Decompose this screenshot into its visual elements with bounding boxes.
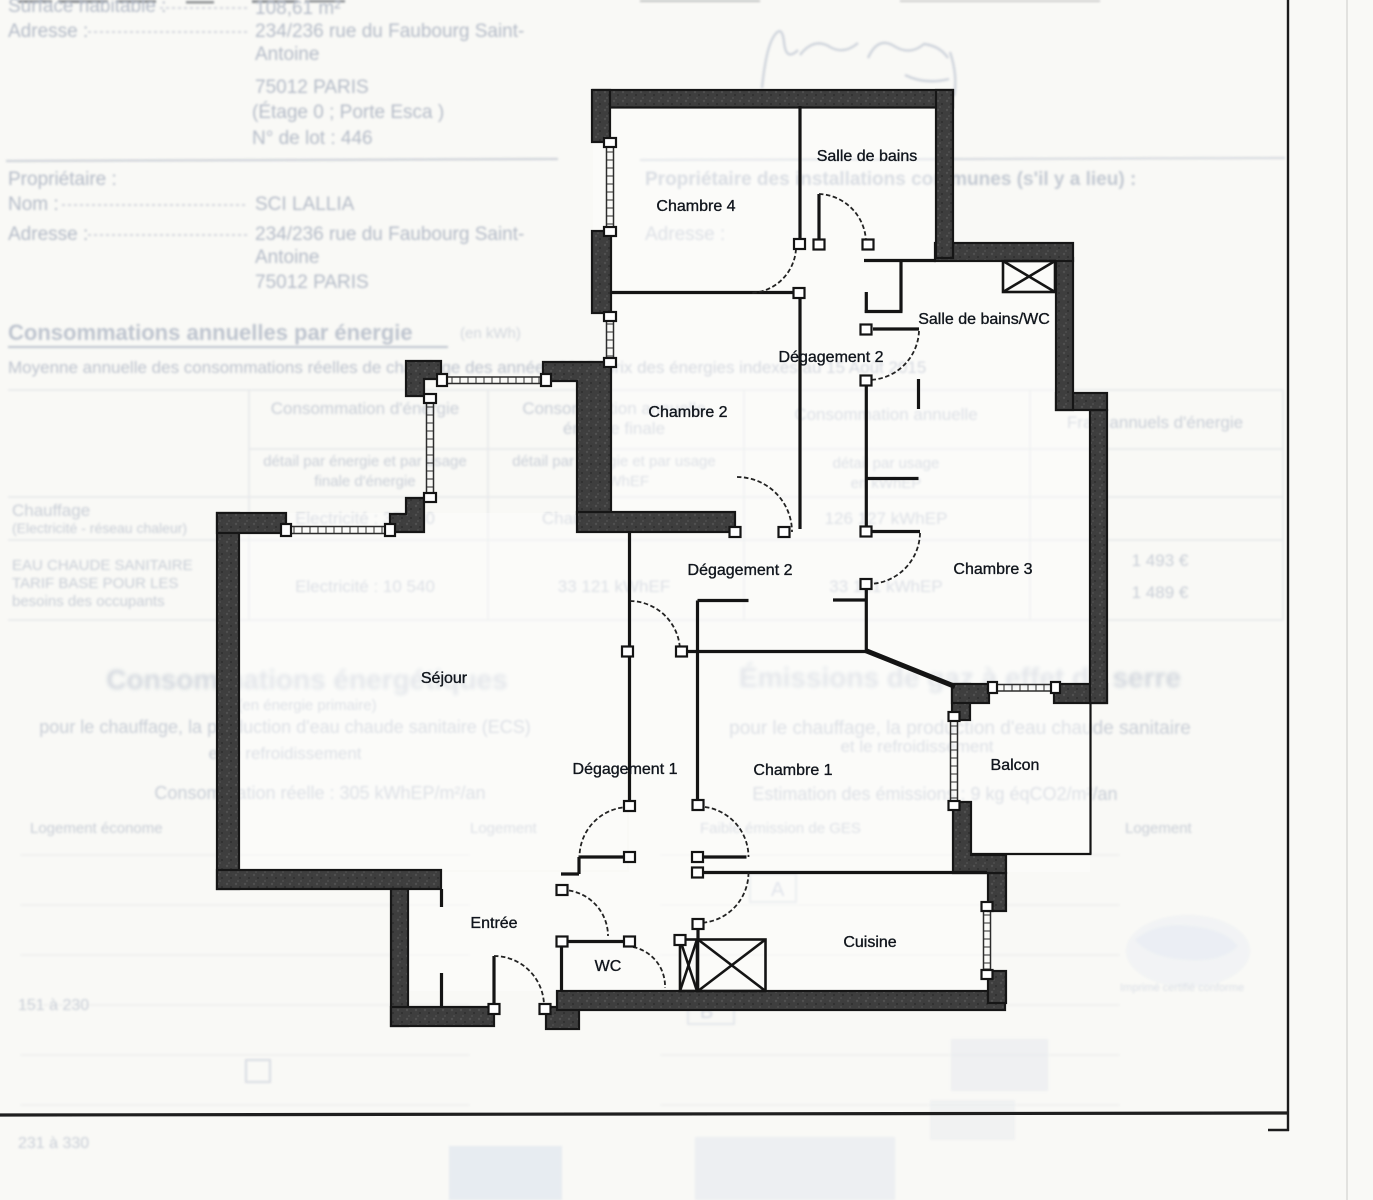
svg-text:SCI LALLIA: SCI LALLIA — [255, 194, 355, 215]
svg-text:Logement économe: Logement économe — [30, 820, 163, 837]
svg-text:Antoine: Antoine — [255, 44, 319, 65]
svg-text:besoins des occupants: besoins des occupants — [12, 593, 165, 610]
svg-text:(Étage 0 ; Porte Esca ): (Étage 0 ; Porte Esca ) — [252, 102, 444, 123]
svg-text:Adresse :: Adresse : — [8, 21, 88, 42]
svg-text:Consommations annuelles par én: Consommations annuelles par énergie — [8, 320, 413, 345]
svg-text:Logement: Logement — [1125, 820, 1193, 837]
svg-text:Séjour: Séjour — [421, 670, 468, 687]
svg-text:Antoine: Antoine — [255, 247, 319, 268]
svg-text:Balcon: Balcon — [991, 757, 1040, 774]
svg-text:Chambre 4: Chambre 4 — [656, 198, 735, 215]
svg-text:234/236 rue du Faubourg Saint-: 234/236 rue du Faubourg Saint- — [255, 21, 524, 42]
svg-text:75012 PARIS: 75012 PARIS — [255, 272, 369, 293]
svg-text:231 à 330: 231 à 330 — [18, 1135, 89, 1152]
svg-text:Chambre 1: Chambre 1 — [753, 762, 832, 779]
svg-text:Dégagement 2: Dégagement 2 — [688, 562, 793, 579]
svg-text:1 489 €: 1 489 € — [1132, 583, 1189, 602]
svg-text:Chambre 2: Chambre 2 — [648, 404, 727, 421]
svg-text:Dégagement 1: Dégagement 1 — [573, 761, 678, 778]
svg-text:Adresse :: Adresse : — [8, 224, 88, 245]
svg-text:Salle de bains: Salle de bains — [817, 148, 918, 165]
svg-text:WC: WC — [595, 958, 622, 975]
svg-text:75012 PARIS: 75012 PARIS — [255, 77, 369, 98]
svg-text:Surface habitable :: Surface habitable : — [8, 0, 166, 17]
svg-text:Nom :: Nom : — [8, 194, 59, 215]
svg-text:Entrée: Entrée — [470, 915, 517, 932]
svg-text:détail par énergie et par usag: détail par énergie et par usage — [263, 453, 466, 470]
svg-text:(en kWh): (en kWh) — [460, 325, 521, 342]
svg-text:108,61 m²: 108,61 m² — [255, 0, 341, 19]
svg-text:234/236 rue du Faubourg Saint-: 234/236 rue du Faubourg Saint- — [255, 224, 524, 245]
svg-text:Propriétaire :: Propriétaire : — [8, 169, 117, 190]
svg-text:Cuisine: Cuisine — [843, 934, 896, 951]
svg-text:Dégagement 2: Dégagement 2 — [779, 349, 884, 366]
svg-text:finale d'énergie: finale d'énergie — [314, 473, 415, 490]
svg-text:1 493 €: 1 493 € — [1132, 551, 1189, 570]
svg-text:EAU CHAUDE SANITAIRE: EAU CHAUDE SANITAIRE — [12, 557, 193, 574]
svg-text:N° de lot : 446: N° de lot : 446 — [252, 128, 373, 149]
svg-text:Chauffage: Chauffage — [12, 501, 90, 520]
svg-text:TARIF BASE POUR LES: TARIF BASE POUR LES — [12, 575, 178, 592]
svg-text:(Electricité - réseau chaleur): (Electricité - réseau chaleur) — [12, 520, 187, 536]
svg-text:Salle de bains/WC: Salle de bains/WC — [918, 311, 1050, 328]
svg-text:151 à 230: 151 à 230 — [18, 997, 89, 1014]
svg-text:Chambre 3: Chambre 3 — [953, 561, 1032, 578]
svg-text:Imprimé certifié conforme: Imprimé certifié conforme — [1120, 982, 1244, 994]
